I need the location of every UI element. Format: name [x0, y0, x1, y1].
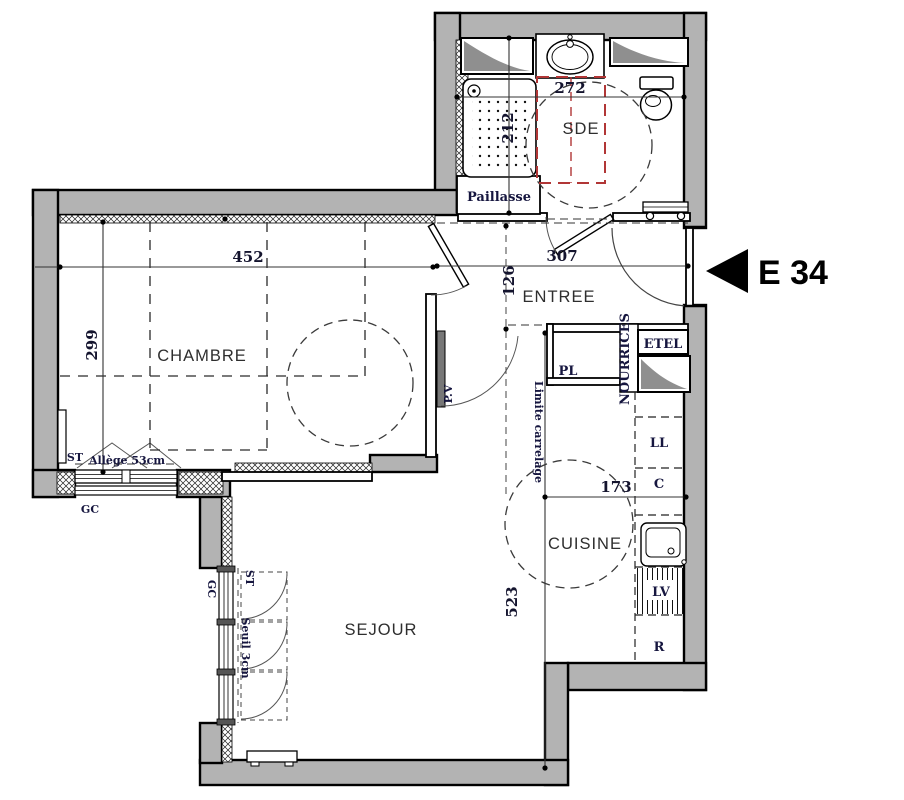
wall-living-left-lower [200, 723, 222, 763]
wall-kitchen-bottom [568, 663, 706, 690]
label-manifolds: NOURRICES [618, 313, 633, 405]
dim-living-depth: 523 [503, 586, 521, 617]
entrance-arrow-icon [706, 249, 748, 293]
label-st-bedroom: ST [67, 451, 84, 464]
toilet-icon [640, 77, 673, 120]
threshold-dashes [75, 219, 688, 464]
wall-bedroom-east [426, 294, 436, 457]
annotation-labels: Paillasse PL ETEL NOURRICES LL C LV R ST… [67, 190, 682, 679]
turning-circle-bathroom [526, 82, 652, 208]
wall-partition-bedroom-living [222, 472, 372, 481]
label-washing-machine: LL [650, 436, 668, 451]
label-gc-bedroom: GC [81, 503, 99, 516]
dim-kitchen-worktop: 173 [600, 478, 631, 496]
label-glazed-door: P.V [442, 384, 455, 403]
room-label-bedroom: CHAMBRE [157, 347, 247, 365]
dim-bathroom-width: 272 [554, 79, 585, 97]
unit-label: E 34 [758, 254, 828, 292]
wall-bedroom-top [33, 190, 460, 215]
dim-entry-width: 307 [546, 247, 577, 265]
insulation-hatch [57, 40, 468, 762]
wall-closet-bottom [547, 378, 620, 385]
room-label-bathroom: SDE [563, 120, 600, 138]
label-dishwasher: LV [652, 585, 671, 600]
kitchen-fixtures [637, 523, 686, 614]
room-label-living: SEJOUR [345, 621, 418, 639]
bedroom-door [428, 224, 468, 296]
entrance-marker: E 34 [706, 249, 828, 293]
label-tile-limit: Limite carrelage [532, 381, 545, 483]
dimension-dots [57, 35, 690, 770]
label-closet: PL [559, 364, 578, 379]
washbasin-icon [536, 34, 604, 78]
label-threshold: Seuil 3cm [239, 617, 252, 678]
room-label-entry: ENTREE [523, 288, 596, 306]
dim-bathroom-depth: 212 [499, 112, 517, 143]
dim-bedroom-width: 452 [232, 248, 263, 266]
label-fridge: R [654, 640, 665, 655]
room-label-kitchen: CUISINE [548, 535, 622, 553]
wall-living-left-upper [200, 490, 222, 568]
label-counter: Paillasse [467, 190, 531, 205]
floor-plan-e34: E 34 SDE ENTREE CHAMBRE CUISINE SEJOUR 4… [0, 0, 904, 800]
layout-dashes [60, 222, 365, 450]
dim-bedroom-depth: 299 [83, 329, 101, 360]
turning-circle-bedroom [287, 320, 413, 446]
label-cooker: C [654, 477, 664, 492]
wall-closet-left [547, 324, 553, 385]
bedroom-window [75, 443, 181, 495]
label-etel: ETEL [644, 337, 683, 352]
label-st-living: ST [243, 570, 256, 587]
label-gc-living: GC [205, 580, 218, 598]
floor-plan-drawing: E 34 SDE ENTREE CHAMBRE CUISINE SEJOUR 4… [0, 0, 904, 800]
wall-bedroom-left [33, 190, 58, 497]
radiator-bedroom-icon [58, 410, 66, 463]
dimension-lines [35, 38, 688, 768]
kitchen-sink-icon [641, 523, 686, 566]
label-sill-height: Allège 53cm [88, 454, 165, 467]
dim-entry-depth: 126 [500, 265, 518, 296]
